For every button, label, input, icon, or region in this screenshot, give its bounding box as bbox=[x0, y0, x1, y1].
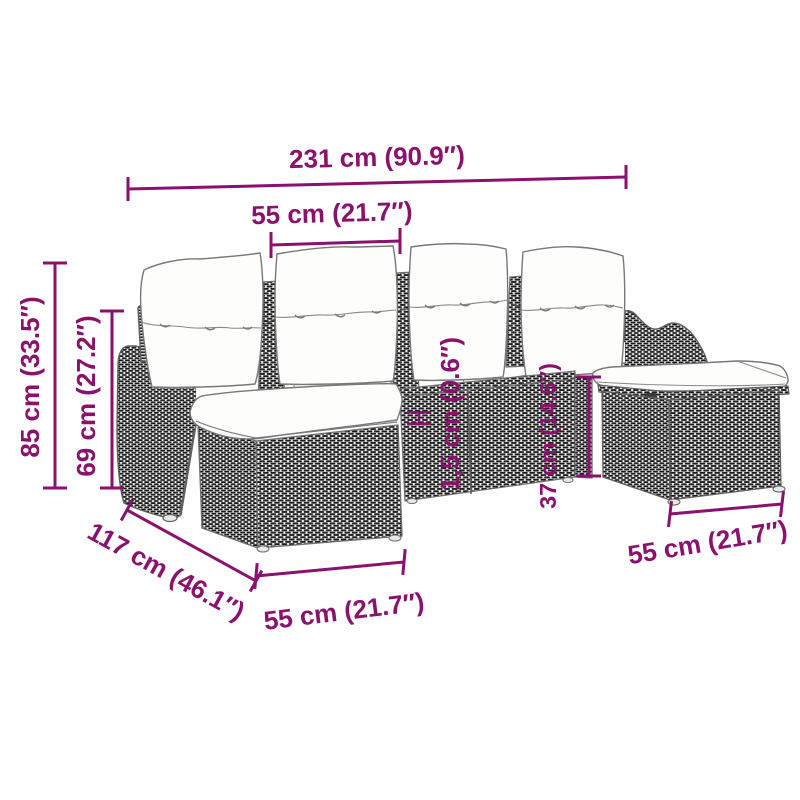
svg-text:69 cm (27.2″): 69 cm (27.2″) bbox=[71, 315, 101, 476]
svg-text:231 cm (90.9″): 231 cm (90.9″) bbox=[289, 140, 465, 174]
svg-text:85 cm (33.5″): 85 cm (33.5″) bbox=[15, 296, 45, 457]
svg-text:37 cm (14.6″): 37 cm (14.6″) bbox=[535, 363, 561, 509]
svg-text:1,5 cm (0.6″): 1,5 cm (0.6″) bbox=[435, 337, 465, 491]
svg-text:55 cm (21.7″): 55 cm (21.7″) bbox=[251, 196, 413, 230]
